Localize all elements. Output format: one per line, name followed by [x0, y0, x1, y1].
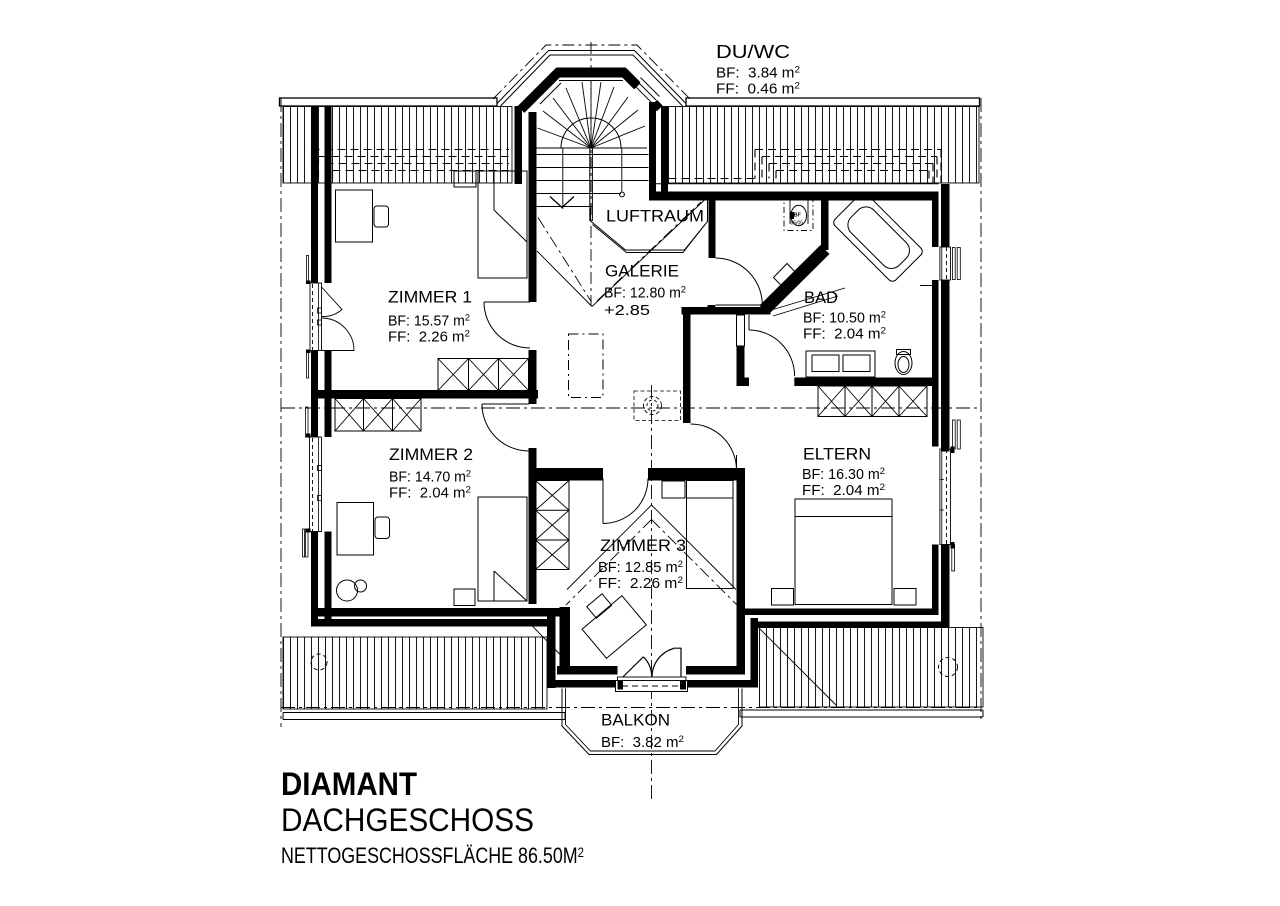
svg-text:GALERIE: GALERIE	[605, 263, 679, 281]
svg-text:BF: 14.70 m2: BF: 14.70 m2	[389, 469, 471, 486]
svg-text:BF: 15.57 m2: BF: 15.57 m2	[388, 313, 470, 330]
svg-text:BAD: BAD	[804, 289, 838, 307]
svg-text:FF: 2.26 m2: FF: 2.26 m2	[388, 329, 470, 346]
svg-text:ZIMMER 1: ZIMMER 1	[388, 289, 472, 307]
svg-text:DACHGESCHOSS: DACHGESCHOSS	[281, 802, 534, 838]
svg-text:ZIMMER 2: ZIMMER 2	[389, 446, 473, 464]
svg-text:BF: 3.84 m2: BF: 3.84 m2	[716, 65, 800, 82]
svg-text:DU/WC: DU/WC	[716, 42, 790, 62]
svg-text:+2.85: +2.85	[604, 303, 650, 319]
svg-text:DIAMANT: DIAMANT	[281, 766, 417, 802]
svg-text:ELTERN: ELTERN	[803, 446, 871, 464]
svg-text:BF: 10.50 m2: BF: 10.50 m2	[803, 310, 886, 327]
svg-text:BF: 16.30 m2: BF: 16.30 m2	[802, 466, 885, 483]
svg-text:BF: 12.80 m2: BF: 12.80 m2	[604, 285, 686, 302]
svg-text:FF: 2.04 m2: FF: 2.04 m2	[389, 485, 471, 502]
svg-text:BALKON: BALKON	[601, 712, 670, 730]
svg-text:FF: 2.26 m2: FF: 2.26 m2	[598, 575, 683, 592]
svg-text:BF: 12.85 m2: BF: 12.85 m2	[598, 559, 683, 576]
svg-text:FF: 2.04 m2: FF: 2.04 m2	[803, 326, 886, 343]
svg-text:BF: 3.82 m2: BF: 3.82 m2	[601, 734, 684, 751]
svg-text:ZIMMER 3: ZIMMER 3	[600, 537, 686, 555]
svg-text:FF: 0.46 m2: FF: 0.46 m2	[716, 81, 800, 98]
svg-text:BF: BF	[794, 213, 802, 219]
svg-text:95/05: 95/05	[791, 221, 804, 227]
svg-text:FF: 2.04 m2: FF: 2.04 m2	[802, 482, 885, 499]
svg-text:LUFTRAUM: LUFTRAUM	[606, 208, 704, 226]
svg-text:NETTOGESCHOSSFLÄCHE 86.50M2: NETTOGESCHOSSFLÄCHE 86.50M2	[281, 843, 584, 868]
